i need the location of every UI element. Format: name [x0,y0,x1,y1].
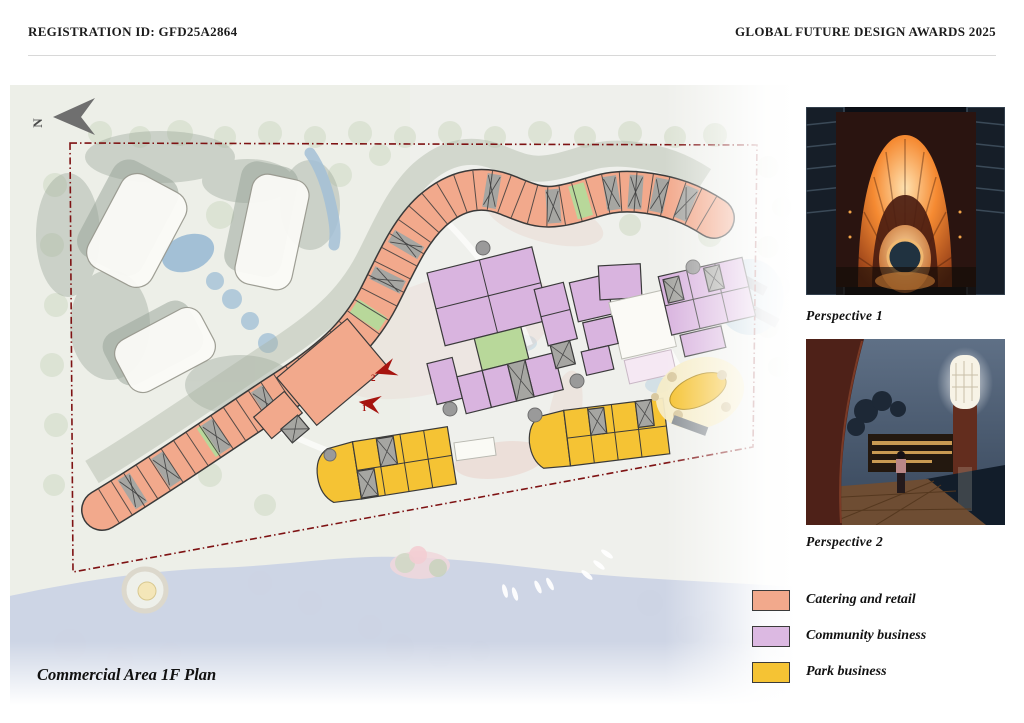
perspective-2-caption: Perspective 2 [806,534,883,550]
site-plan-map: 2 1 N [10,85,795,705]
legend-item-catering: Catering and retail [752,589,926,611]
perspective-1-caption: Perspective 1 [806,308,883,324]
legend: Catering and retail Community business P… [752,589,926,697]
community-swatch [752,626,790,647]
header-divider [28,55,996,56]
catering-label: Catering and retail [806,592,916,608]
legend-item-park: Park business [752,661,926,683]
award-title: GLOBAL FUTURE DESIGN AWARDS 2025 [735,24,996,40]
perspective-2-photo [806,339,1005,525]
legend-item-community: Community business [752,625,926,647]
park-label: Park business [806,664,887,680]
north-label: N [30,118,45,128]
catering-swatch [752,590,790,611]
plan-title: Commercial Area 1F Plan [37,665,216,685]
perspective-1-photo [806,107,1005,295]
entrance-label-1: 1 [362,403,367,413]
registration-id: REGISTRATION ID: GFD25A2864 [28,24,237,40]
community-label: Community business [806,628,926,644]
site-plan: 2 1 N Commercial Area 1F Plan [10,85,795,705]
park-swatch [752,662,790,683]
award-board: REGISTRATION ID: GFD25A2864 GLOBAL FUTUR… [0,0,1024,723]
entrance-label-2: 2 [371,373,376,383]
spiral-walk [124,569,166,611]
